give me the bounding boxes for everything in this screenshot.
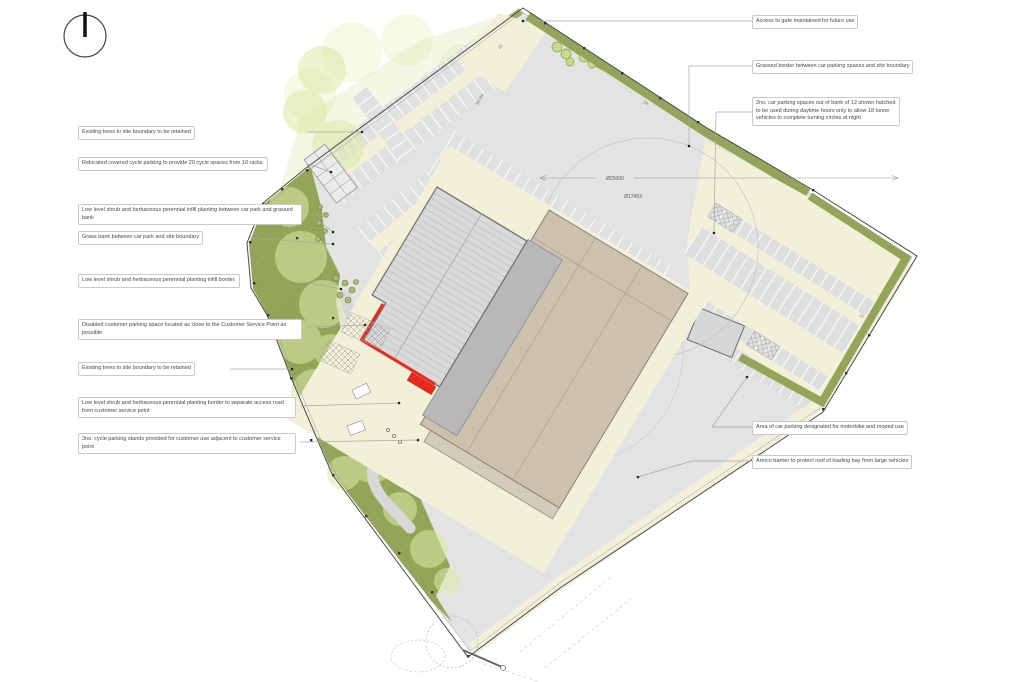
annotation-right-grassed-border: Grassed border between car parking space… <box>752 60 913 74</box>
annotation-left-cycle-parking: Relocated covered cycle parking to provi… <box>78 157 268 171</box>
annotation-left-trees-bottom: Existing trees to site boundary to be re… <box>78 362 195 376</box>
north-arrow-icon <box>64 12 106 57</box>
dim-outer-circle: Ø25000 <box>606 176 624 182</box>
annotation-right-motorbike-parking: Area of car parking designated for motor… <box>752 421 908 435</box>
annotation-left-trees-top: Existing trees to site boundary to be re… <box>78 126 195 140</box>
annotation-left-grass-bank: Grass bank between car park and site bou… <box>78 231 203 245</box>
dim-inner-circle: Ø17453 <box>624 194 642 200</box>
annotation-left-disabled-parking: Disabled customer parking space located … <box>78 319 302 340</box>
annotation-right-hatched-spaces: 2no. car parking spaces out of bank of 1… <box>752 97 900 126</box>
annotation-right-armco-barrier: Armco barrier to protect roof of loading… <box>752 455 912 469</box>
site-plan-page: Ø25000 Ø17453 30.3m 10 20 12 Existing <box>0 0 1024 682</box>
annotation-right-gate-access: Access to gate maintained for future use <box>752 15 858 29</box>
annotation-left-infill-planting: Low level shrub and herbaceous perennial… <box>78 204 302 225</box>
annotation-left-cycle-stands: 3no. cycle parking stands provided for c… <box>78 433 296 454</box>
annotation-left-planting-border: Low level shrub and herbaceous perennial… <box>78 397 296 418</box>
annotation-left-infill-border: Low level shrub and herbaceous perennial… <box>78 274 240 288</box>
